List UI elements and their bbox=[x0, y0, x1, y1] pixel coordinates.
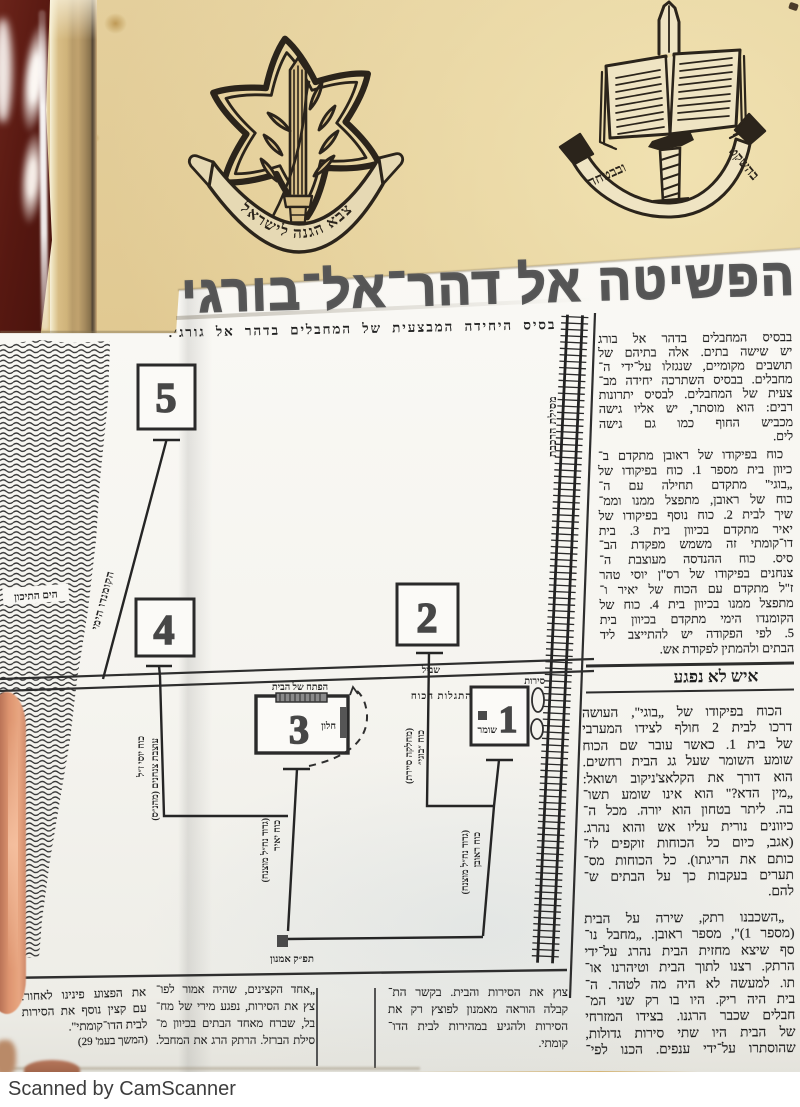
svg-text:שומר: שומר bbox=[478, 726, 498, 736]
svg-text:(מהנ״ס) עוצבת צנחנים: (מהנ״ס) עוצבת צנחנים bbox=[150, 738, 161, 821]
svg-text:(גדוד נח״ל מוצנח): (גדוד נח״ל מוצנח) bbox=[460, 830, 471, 894]
svg-text:חלון: חלון bbox=[321, 721, 336, 732]
svg-text:כוח יאיר: כוח יאיר bbox=[273, 820, 283, 851]
svg-text:3: 3 bbox=[289, 707, 309, 752]
svg-text:תפ״ק אמנון: תפ״ק אמנון bbox=[270, 954, 314, 965]
svg-text:סירות: סירות bbox=[524, 677, 545, 687]
svg-text:הקומנדו הימי: הקומנדו הימי bbox=[90, 570, 117, 632]
svg-text:(גדוד נח״ל מוצנח): (גדוד נח״ל מוצנח) bbox=[260, 818, 271, 882]
svg-text:1: 1 bbox=[499, 699, 518, 741]
svg-text:התגלות הכוח: התגלות הכוח bbox=[411, 690, 472, 702]
svg-text:שביל: שביל bbox=[421, 665, 441, 676]
svg-text:5: 5 bbox=[156, 376, 177, 422]
svg-text:הפתח של הבית: הפתח של הבית bbox=[272, 682, 328, 693]
svg-text:מסילת הרכבת: מסילת הרכבת bbox=[547, 396, 559, 457]
svg-text:4: 4 bbox=[154, 608, 175, 654]
svg-text:(מחלקה סיירת): (מחלקה סיירת) bbox=[404, 728, 415, 784]
svg-text:כוח ״בוגי״: כוח ״בוגי״ bbox=[417, 730, 427, 765]
svg-text:כוח יוסי ז״ל: כוח יוסי ז״ל bbox=[136, 736, 147, 778]
svg-text:כוח ראובן: כוח ראובן bbox=[473, 832, 483, 868]
svg-text:2: 2 bbox=[417, 596, 438, 642]
